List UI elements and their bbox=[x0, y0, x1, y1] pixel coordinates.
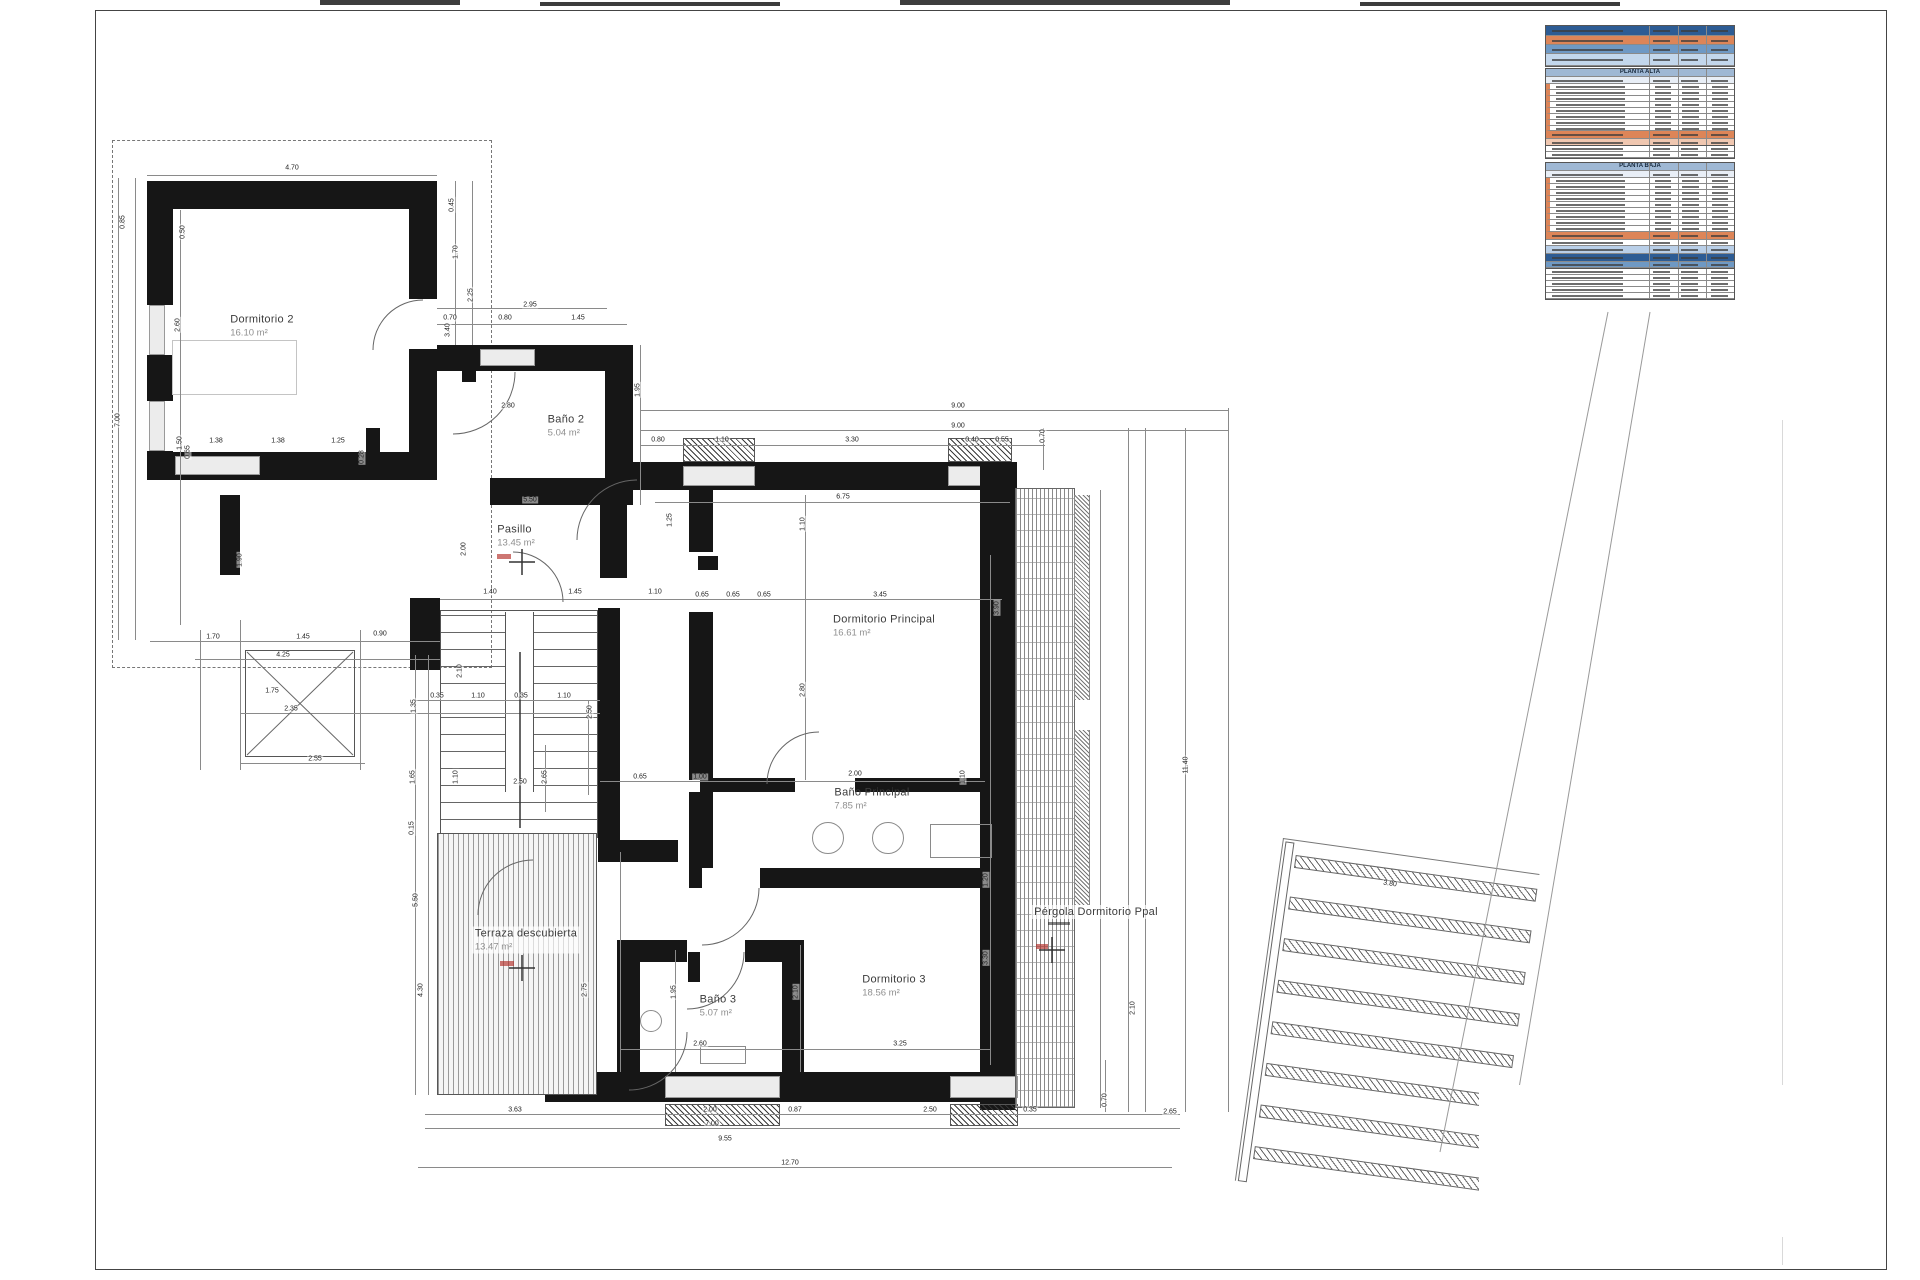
dimension-label: 1.70 bbox=[453, 244, 460, 260]
illegible-text bbox=[1556, 104, 1626, 106]
room-name: Dormitorio Principal bbox=[833, 614, 935, 626]
illegible-text bbox=[1711, 295, 1728, 297]
illegible-text bbox=[1653, 289, 1670, 291]
dimension-label: 0.65 bbox=[725, 592, 741, 599]
room-name: Terraza descubierta bbox=[475, 928, 577, 940]
dimension-label: 1.45 bbox=[570, 315, 586, 322]
dimension-label: 2.35 bbox=[283, 706, 299, 713]
drawing-element bbox=[629, 1032, 687, 1090]
room-label: Dormitorio Principal16.61 m² bbox=[833, 614, 935, 639]
illegible-text bbox=[1711, 134, 1728, 136]
illegible-text bbox=[1552, 80, 1623, 82]
illegible-text bbox=[1556, 222, 1626, 224]
dimension-label: 1.90 bbox=[237, 552, 244, 568]
dimension-label: 0.80 bbox=[650, 437, 666, 444]
illegible-text bbox=[1681, 264, 1698, 266]
illegible-text bbox=[1655, 86, 1672, 88]
room-name: Pasillo bbox=[497, 524, 535, 536]
dimension-label: 1.20 bbox=[983, 872, 990, 888]
drawing-element bbox=[767, 732, 819, 784]
illegible-text bbox=[1712, 104, 1729, 106]
illegible-text bbox=[1711, 249, 1728, 251]
dimension-label: 3.30 bbox=[844, 437, 860, 444]
illegible-text bbox=[1552, 242, 1623, 244]
illegible-text bbox=[1653, 30, 1670, 32]
illegible-text bbox=[1712, 198, 1729, 200]
scan-patch bbox=[1479, 1085, 1875, 1237]
dimension-label: 3.25 bbox=[892, 1041, 908, 1048]
illegible-text bbox=[1682, 210, 1699, 212]
illegible-text bbox=[1681, 154, 1698, 156]
area-table bbox=[1545, 25, 1735, 67]
illegible-text bbox=[1655, 204, 1672, 206]
room-label: Dormitorio 216.10 m² bbox=[230, 314, 294, 339]
dimension-label: 1.40 bbox=[482, 589, 498, 596]
illegible-text bbox=[1711, 148, 1728, 150]
illegible-text bbox=[1552, 283, 1623, 285]
illegible-text bbox=[1682, 222, 1699, 224]
dimension-label: 2.00 bbox=[461, 541, 468, 557]
level-mark bbox=[500, 961, 514, 966]
dimension-label: 1.45 bbox=[567, 589, 583, 596]
illegible-text bbox=[1552, 59, 1623, 61]
illegible-text bbox=[1682, 86, 1699, 88]
dimension-label: 0.80 bbox=[497, 315, 513, 322]
illegible-text bbox=[1711, 30, 1728, 32]
illegible-text bbox=[1653, 154, 1670, 156]
illegible-text bbox=[1556, 192, 1626, 194]
dimension-label: 11.40 bbox=[1183, 756, 1190, 775]
dimension-label: 0.35 bbox=[429, 693, 445, 700]
illegible-text bbox=[1556, 210, 1626, 212]
illegible-text bbox=[1681, 242, 1698, 244]
illegible-text bbox=[1655, 92, 1672, 94]
dimension-label: 4.30 bbox=[418, 982, 425, 998]
dimension-label: 0.87 bbox=[787, 1107, 803, 1114]
illegible-text bbox=[1681, 235, 1698, 237]
illegible-text bbox=[1682, 128, 1699, 130]
dimension-label: 1.70 bbox=[205, 634, 221, 641]
illegible-text bbox=[1653, 148, 1670, 150]
illegible-text bbox=[1655, 198, 1672, 200]
dimension-label: 1.25 bbox=[667, 512, 674, 528]
illegible-text bbox=[1655, 122, 1672, 124]
dimension-label: 0.45 bbox=[449, 197, 456, 213]
illegible-text bbox=[1682, 186, 1699, 188]
illegible-text bbox=[1712, 222, 1729, 224]
dimension-label: 0.40 bbox=[964, 437, 980, 444]
illegible-text bbox=[1556, 186, 1626, 188]
dimension-label: 1.65 bbox=[410, 769, 417, 785]
illegible-text bbox=[1681, 59, 1698, 61]
illegible-text bbox=[1682, 116, 1699, 118]
area-table: PLANTA BAJA bbox=[1545, 162, 1735, 269]
illegible-text bbox=[1552, 264, 1623, 266]
dimension-label: 1.38 bbox=[270, 438, 286, 445]
illegible-text bbox=[1653, 59, 1670, 61]
table-column-separator bbox=[1649, 269, 1650, 299]
illegible-text bbox=[1552, 295, 1623, 297]
drawing-element bbox=[1440, 312, 1608, 1152]
room-label: Baño 35.07 m² bbox=[700, 994, 737, 1019]
table-column-separator bbox=[1649, 26, 1650, 66]
room-area: 16.10 m² bbox=[230, 328, 294, 339]
illegible-text bbox=[1711, 277, 1728, 279]
illegible-text bbox=[1712, 186, 1729, 188]
table-column-separator bbox=[1678, 163, 1679, 268]
dimension-label: 4.70 bbox=[284, 165, 300, 172]
illegible-text bbox=[1653, 134, 1670, 136]
illegible-text bbox=[1711, 40, 1728, 42]
illegible-text bbox=[1556, 92, 1626, 94]
dimension-label: 6.75 bbox=[835, 494, 851, 501]
illegible-text bbox=[1655, 128, 1672, 130]
dimension-label: 1.10 bbox=[800, 516, 807, 532]
dimension-label: 3.30 bbox=[983, 950, 990, 966]
dimension-label: 0.70 bbox=[442, 315, 458, 322]
illegible-text bbox=[1711, 59, 1728, 61]
illegible-text bbox=[1556, 128, 1626, 130]
dimension-label: 1.10 bbox=[470, 693, 486, 700]
illegible-text bbox=[1552, 148, 1623, 150]
dimension-label: 0.28 bbox=[359, 449, 366, 465]
dimension-label: 5.50 bbox=[522, 497, 538, 504]
dimension-label: 12.70 bbox=[780, 1160, 800, 1167]
room-label: Pasillo13.45 m² bbox=[497, 524, 535, 549]
illegible-text bbox=[1712, 228, 1729, 230]
illegible-text bbox=[1552, 257, 1623, 259]
illegible-text bbox=[1681, 40, 1698, 42]
illegible-text bbox=[1681, 30, 1698, 32]
dimension-label: 3.63 bbox=[507, 1107, 523, 1114]
illegible-text bbox=[1653, 242, 1670, 244]
illegible-text bbox=[1556, 110, 1626, 112]
illegible-text bbox=[1711, 289, 1728, 291]
illegible-text bbox=[1556, 216, 1626, 218]
illegible-text bbox=[1682, 122, 1699, 124]
illegible-text bbox=[1711, 174, 1728, 176]
table-column-separator bbox=[1706, 26, 1707, 66]
dimension-label: 0.70 bbox=[1040, 428, 1047, 444]
dimension-label: 2.65 bbox=[542, 769, 549, 785]
illegible-text bbox=[1681, 295, 1698, 297]
dimension-label: 2.50 bbox=[587, 704, 594, 720]
illegible-text bbox=[1712, 122, 1729, 124]
dimension-label: 7.00 bbox=[115, 412, 122, 428]
illegible-text bbox=[1556, 228, 1626, 230]
illegible-text bbox=[1682, 198, 1699, 200]
illegible-text bbox=[1682, 98, 1699, 100]
table-column-separator bbox=[1678, 26, 1679, 66]
illegible-text bbox=[1552, 49, 1623, 51]
illegible-text bbox=[1681, 134, 1698, 136]
illegible-text bbox=[1552, 142, 1623, 144]
drawing-element bbox=[577, 480, 637, 540]
illegible-text bbox=[1711, 242, 1728, 244]
illegible-text bbox=[1711, 271, 1728, 273]
illegible-text bbox=[1681, 142, 1698, 144]
dimension-label: 0.85 bbox=[120, 214, 127, 230]
dimension-label: 0.35 bbox=[513, 693, 529, 700]
dimension-label: 1.10 bbox=[647, 589, 663, 596]
dimension-label: 1.10 bbox=[714, 437, 730, 444]
room-area: 5.04 m² bbox=[548, 428, 585, 439]
dimension-label: 0.90 bbox=[372, 631, 388, 638]
dimension-label: 2.25 bbox=[468, 287, 475, 303]
room-area: 7.85 m² bbox=[834, 801, 909, 812]
illegible-text bbox=[1655, 192, 1672, 194]
illegible-text bbox=[1655, 98, 1672, 100]
illegible-text bbox=[1682, 204, 1699, 206]
illegible-text bbox=[1552, 271, 1623, 273]
illegible-text bbox=[1681, 49, 1698, 51]
illegible-text bbox=[1556, 86, 1626, 88]
drawing-element bbox=[702, 888, 759, 945]
illegible-text bbox=[1711, 235, 1728, 237]
dimension-label: 1.10 bbox=[556, 693, 572, 700]
room-area: 5.07 m² bbox=[700, 1008, 737, 1019]
illegible-text bbox=[1655, 216, 1672, 218]
illegible-text bbox=[1653, 80, 1670, 82]
dimension-label: 9.00 bbox=[950, 423, 966, 430]
illegible-text bbox=[1556, 204, 1626, 206]
illegible-text bbox=[1552, 154, 1623, 156]
illegible-text bbox=[1711, 49, 1728, 51]
illegible-text bbox=[1712, 116, 1729, 118]
illegible-text bbox=[1653, 283, 1670, 285]
illegible-text bbox=[1556, 198, 1626, 200]
table-column-separator bbox=[1678, 146, 1679, 158]
illegible-text bbox=[1682, 104, 1699, 106]
illegible-text bbox=[1655, 186, 1672, 188]
illegible-text bbox=[1653, 249, 1670, 251]
area-table: PLANTA ALTA bbox=[1545, 68, 1735, 147]
dimension-label: 4.25 bbox=[275, 652, 291, 659]
dimension-label: 1.35 bbox=[411, 698, 418, 714]
illegible-text bbox=[1552, 289, 1623, 291]
illegible-text bbox=[1712, 180, 1729, 182]
illegible-text bbox=[1653, 257, 1670, 259]
illegible-text bbox=[1711, 80, 1728, 82]
dimension-label: 0.70 bbox=[1102, 1092, 1109, 1108]
room-label: Baño 25.04 m² bbox=[548, 414, 585, 439]
illegible-text bbox=[1552, 235, 1623, 237]
dimension-label: 0.65 bbox=[756, 592, 772, 599]
dimension-label: 0.55 bbox=[994, 437, 1010, 444]
dimension-label: 2.60 bbox=[175, 317, 182, 333]
room-label: Pérgola Dormitorio Ppal bbox=[1031, 905, 1161, 919]
floor-plan-sheet: Dormitorio 216.10 m²Baño 25.04 m²Pasillo… bbox=[0, 0, 1920, 1280]
dimension-label: 9.55 bbox=[717, 1136, 733, 1143]
illegible-text bbox=[1712, 110, 1729, 112]
illegible-text bbox=[1712, 216, 1729, 218]
illegible-text bbox=[1655, 110, 1672, 112]
illegible-text bbox=[1682, 92, 1699, 94]
dimension-label: 0.15 bbox=[409, 820, 416, 836]
illegible-text bbox=[1682, 216, 1699, 218]
room-area: 18.56 m² bbox=[862, 988, 926, 999]
dimension-label: 2.10 bbox=[793, 984, 800, 1000]
illegible-text bbox=[1681, 277, 1698, 279]
dimension-label: 9.00 bbox=[950, 403, 966, 410]
level-mark bbox=[497, 554, 511, 559]
illegible-text bbox=[1653, 264, 1670, 266]
illegible-text bbox=[1653, 295, 1670, 297]
room-name: Baño 2 bbox=[548, 414, 585, 426]
illegible-text bbox=[1712, 98, 1729, 100]
level-mark bbox=[1036, 944, 1048, 949]
illegible-text bbox=[1681, 283, 1698, 285]
room-area: 13.45 m² bbox=[497, 538, 535, 549]
illegible-text bbox=[1712, 192, 1729, 194]
illegible-text bbox=[1681, 257, 1698, 259]
room-name: Dormitorio 3 bbox=[862, 974, 926, 986]
dimension-label: 0.65 bbox=[632, 774, 648, 781]
table-column-separator bbox=[1678, 69, 1679, 146]
illegible-text bbox=[1655, 228, 1672, 230]
illegible-text bbox=[1682, 180, 1699, 182]
dimension-label: 2.00 bbox=[702, 1107, 718, 1114]
table-column-separator bbox=[1706, 269, 1707, 299]
dimension-label: 2.60 bbox=[692, 1041, 708, 1048]
illegible-text bbox=[1556, 98, 1626, 100]
drawing-element bbox=[478, 860, 533, 915]
illegible-text bbox=[1681, 249, 1698, 251]
dimension-label: 3.90 bbox=[994, 600, 1001, 616]
illegible-text bbox=[1552, 134, 1623, 136]
dimension-label: 2.95 bbox=[522, 302, 538, 309]
dimension-label: 1.00 bbox=[692, 774, 708, 781]
illegible-text bbox=[1712, 204, 1729, 206]
dimension-label: 2.50 bbox=[922, 1107, 938, 1114]
dimension-label: 2.55 bbox=[307, 756, 323, 763]
dimension-label: 1.10 bbox=[453, 769, 460, 785]
illegible-text bbox=[1552, 30, 1623, 32]
dimension-label: 2.10 bbox=[457, 663, 464, 679]
dimension-label: 1.50 bbox=[177, 435, 184, 451]
room-name: Baño Principal bbox=[834, 787, 909, 799]
dimension-label: 0.35 bbox=[1022, 1107, 1038, 1114]
dimension-label: 1.38 bbox=[208, 438, 224, 445]
room-label: Terraza descubierta13.47 m² bbox=[472, 927, 580, 954]
dimension-label: 2.80 bbox=[800, 682, 807, 698]
room-name: Pérgola Dormitorio Ppal bbox=[1034, 906, 1158, 918]
drawing-element bbox=[373, 300, 423, 350]
illegible-text bbox=[1653, 49, 1670, 51]
illegible-text bbox=[1552, 174, 1623, 176]
drawing-element bbox=[509, 549, 1065, 981]
dimension-label: 2.75 bbox=[582, 982, 589, 998]
illegible-text bbox=[1681, 271, 1698, 273]
illegible-text bbox=[1655, 180, 1672, 182]
dimension-label: 1.95 bbox=[671, 984, 678, 1000]
room-name: Baño 3 bbox=[700, 994, 737, 1006]
illegible-text bbox=[1653, 174, 1670, 176]
dimension-label: 2.65 bbox=[1162, 1109, 1178, 1116]
room-name: Dormitorio 2 bbox=[230, 314, 294, 326]
illegible-text bbox=[1653, 235, 1670, 237]
room-label: Dormitorio 318.56 m² bbox=[862, 974, 926, 999]
illegible-text bbox=[1655, 116, 1672, 118]
drawing-element bbox=[1440, 312, 1650, 1152]
illegible-text bbox=[1681, 148, 1698, 150]
dimension-label: 3.40 bbox=[445, 322, 452, 338]
table-column-separator bbox=[1678, 269, 1679, 299]
dimension-label: 0.65 bbox=[694, 592, 710, 599]
dimension-label: 7.00 bbox=[704, 1121, 720, 1128]
illegible-text bbox=[1711, 264, 1728, 266]
dimension-label: 1.75 bbox=[264, 688, 280, 695]
table-column-separator bbox=[1706, 163, 1707, 268]
table-column-separator bbox=[1706, 146, 1707, 158]
illegible-text bbox=[1655, 104, 1672, 106]
dimension-label: 2.10 bbox=[1130, 1000, 1137, 1016]
illegible-text bbox=[1682, 110, 1699, 112]
illegible-text bbox=[1653, 277, 1670, 279]
illegible-text bbox=[1653, 142, 1670, 144]
illegible-text bbox=[1552, 277, 1623, 279]
dimension-label: 0.65 bbox=[185, 444, 192, 460]
area-table bbox=[1545, 145, 1735, 159]
illegible-text bbox=[1712, 210, 1729, 212]
dimension-label: 2.00 bbox=[847, 771, 863, 778]
drawing-element bbox=[247, 300, 819, 1090]
illegible-text bbox=[1552, 40, 1623, 42]
dimension-label: 3.45 bbox=[872, 592, 888, 599]
drawing-element bbox=[513, 552, 563, 602]
illegible-text bbox=[1681, 80, 1698, 82]
table-column-separator bbox=[1649, 163, 1650, 268]
illegible-text bbox=[1711, 283, 1728, 285]
illegible-text bbox=[1552, 249, 1623, 251]
illegible-text bbox=[1712, 86, 1729, 88]
table-column-separator bbox=[1649, 69, 1650, 146]
dimension-label: 1.25 bbox=[330, 438, 346, 445]
illegible-text bbox=[1556, 116, 1626, 118]
table-column-separator bbox=[1706, 69, 1707, 146]
room-label: Baño Principal7.85 m² bbox=[834, 787, 909, 812]
illegible-text bbox=[1655, 210, 1672, 212]
dimension-label: 0.50 bbox=[180, 224, 187, 240]
dimension-label: 5.50 bbox=[413, 892, 420, 908]
illegible-text bbox=[1712, 128, 1729, 130]
area-table bbox=[1545, 268, 1735, 300]
illegible-text bbox=[1653, 271, 1670, 273]
dimension-label: 1.95 bbox=[635, 382, 642, 398]
illegible-text bbox=[1682, 192, 1699, 194]
illegible-text bbox=[1556, 122, 1626, 124]
illegible-text bbox=[1711, 154, 1728, 156]
illegible-text bbox=[1711, 142, 1728, 144]
illegible-text bbox=[1681, 174, 1698, 176]
illegible-text bbox=[1556, 180, 1626, 182]
illegible-text bbox=[1682, 228, 1699, 230]
dimension-label: 1.10 bbox=[960, 769, 967, 785]
dimension-label: 2.50 bbox=[512, 779, 528, 786]
illegible-text bbox=[1653, 40, 1670, 42]
drawing-element bbox=[1516, 312, 1650, 1106]
illegible-text bbox=[1712, 92, 1729, 94]
room-area: 16.61 m² bbox=[833, 628, 935, 639]
room-area: 13.47 m² bbox=[475, 942, 577, 953]
illegible-text bbox=[1681, 289, 1698, 291]
dimension-label: 2.80 bbox=[500, 403, 516, 410]
dimension-label: 1.45 bbox=[295, 634, 311, 641]
illegible-text bbox=[1655, 222, 1672, 224]
illegible-text bbox=[1711, 257, 1728, 259]
table-column-separator bbox=[1649, 146, 1650, 158]
